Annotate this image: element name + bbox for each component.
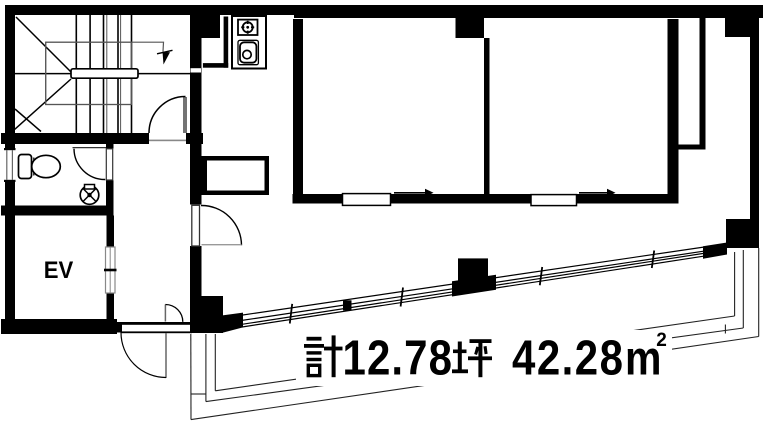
- svg-text:2: 2: [656, 330, 667, 351]
- svg-text:42.28: 42.28: [512, 330, 623, 385]
- svg-text:12.78: 12.78: [343, 330, 453, 385]
- svg-text:EV: EV: [44, 257, 74, 284]
